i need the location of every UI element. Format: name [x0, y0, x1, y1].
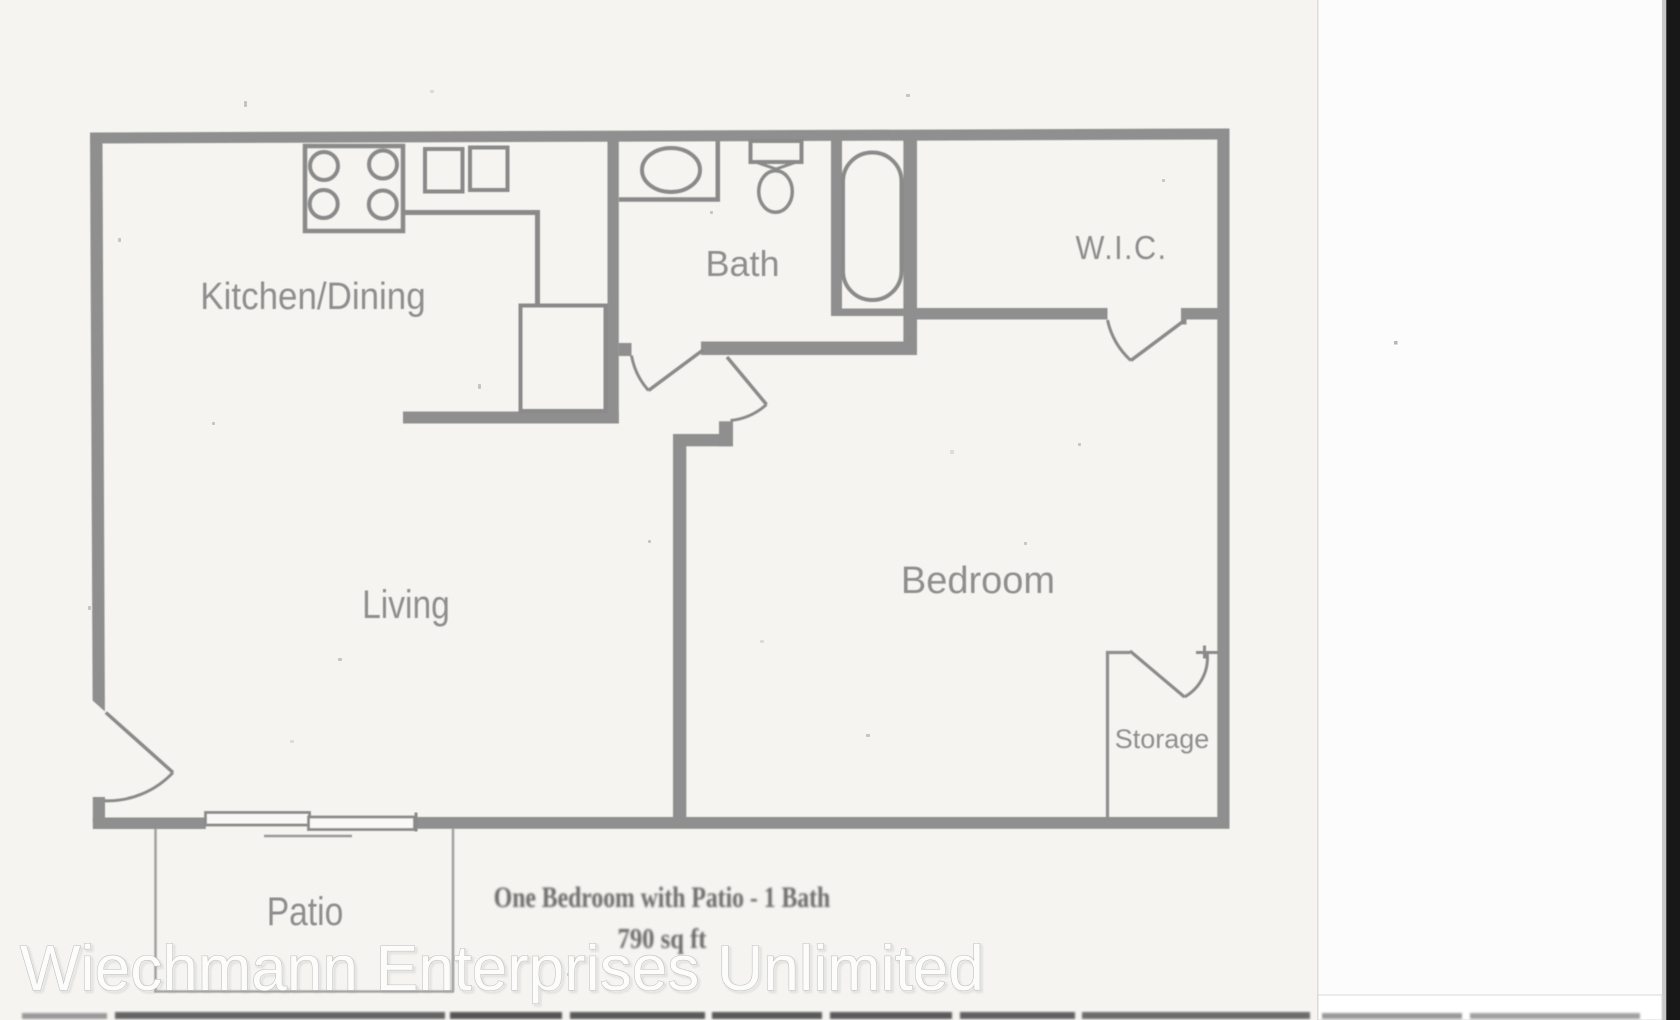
svg-text:One Bedroom with Patio - 1 Bat: One Bedroom with Patio - 1 Bath — [494, 880, 830, 913]
svg-text:Kitchen/Dining: Kitchen/Dining — [200, 275, 425, 318]
svg-text:Bath: Bath — [705, 243, 779, 284]
svg-text:Wiechmann Enterprises Unlimite: Wiechmann Enterprises Unlimited — [20, 932, 984, 1004]
svg-text:Living: Living — [362, 582, 450, 626]
svg-text:Patio: Patio — [267, 889, 344, 933]
svg-text:Storage: Storage — [1115, 724, 1210, 754]
svg-text:W.I.C.: W.I.C. — [1076, 229, 1168, 266]
svg-text:Bedroom: Bedroom — [901, 560, 1055, 602]
